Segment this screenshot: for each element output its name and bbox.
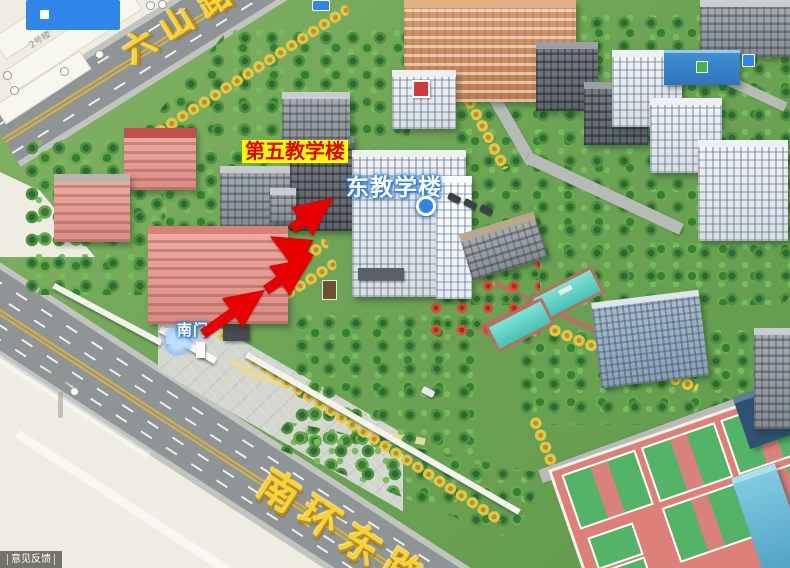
route-arrow-1 (203, 299, 252, 334)
feedback-label: 意见反馈 (7, 554, 55, 565)
campus-3d-map[interactable]: 六山路 南环东路 (0, 0, 790, 568)
route-arrow-4 (292, 207, 321, 229)
route-arrow-3 (284, 244, 311, 259)
feedback-button[interactable]: 意见反馈 (0, 551, 62, 568)
route-arrow-2 (266, 267, 299, 290)
route-arrows (0, 0, 790, 568)
